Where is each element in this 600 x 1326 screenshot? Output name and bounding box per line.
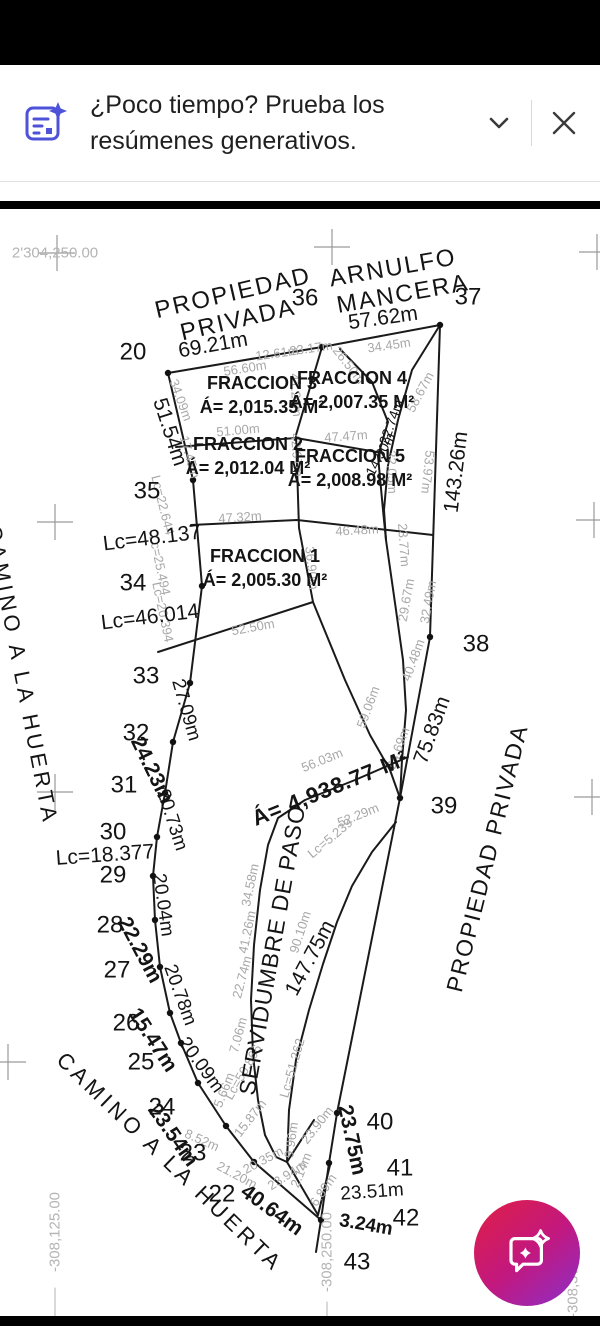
measurement-primary: Lc=46.014 [100,600,201,635]
banner-divider [531,100,532,146]
close-icon [550,109,578,137]
ai-summary-banner: ¿Poco tiempo? Prueba los resúmenes gener… [0,65,600,182]
survey-drawing-canvas[interactable]: 2'304,250.00-308,125.00-308,250.00-308,3… [0,210,600,1316]
banner-message: ¿Poco tiempo? Prueba los resúmenes gener… [90,87,473,159]
measurement-primary: 147.75m [281,917,340,1000]
measurement-primary: 143.26m [440,430,473,514]
grid-coordinate-label: 2'304,250.00 [12,245,98,262]
vertex-dot [167,1010,173,1016]
fraction-label: Á= 2,007.35 M² [290,391,415,412]
measurement-secondary: 9.96m [281,1121,301,1159]
point-number: 35 [134,478,161,505]
measurement-primary: 3.24m [338,1210,395,1240]
measurement-primary: 23.75m [333,1103,370,1177]
fraction-label: Á= 2,008.98 M² [288,469,413,490]
measurement-secondary: 47.32m [218,508,262,526]
fraction-label: FRACCION 5 [295,446,405,466]
vertex-dot [397,795,403,801]
measurement-primary: 20.73m [152,787,192,854]
sheet-top-border [0,201,600,209]
chevron-down-icon [484,108,514,138]
area-title: PROPIEDAD PRIVADA [441,721,533,994]
point-number: 37 [455,284,482,311]
point-number: 43 [344,1249,371,1276]
vertex-dot [165,370,171,376]
measurement-secondary: 23.90m [298,1103,337,1146]
measurement-secondary: 15.87m [231,1096,270,1139]
ai-assistant-chat-icon [495,1221,559,1285]
vertex-dot [154,834,160,840]
point-number: 25 [128,1049,155,1076]
fraction-label: FRACCION 2 [193,434,303,454]
measurement-secondary: 32.49m [417,579,439,624]
point-number: 38 [463,631,490,658]
vertex-dot [170,739,176,745]
generative-summary-icon [22,100,68,146]
ai-assistant-fab[interactable] [474,1200,580,1306]
point-number: 22 [209,1181,236,1208]
point-number: 23 [180,1140,207,1167]
point-number: 29 [100,862,127,889]
app-screen: ¿Poco tiempo? Prueba los resúmenes gener… [0,0,600,1326]
banner-message-line1: ¿Poco tiempo? Prueba los [90,91,385,119]
point-number: 42 [393,1205,420,1232]
point-number: 31 [111,772,138,799]
measurement-primary: 75.83m [409,693,455,767]
fraction-label: Á= 2,005.30 M² [203,569,328,590]
status-bar [0,0,600,65]
measurement-secondary: Lc=5.239 [305,815,356,861]
measurement-secondary: Lc=51.262 [276,1037,307,1100]
vertex-dot [427,634,433,640]
measurement-secondary: 53.97m [418,450,437,495]
point-number: 34 [120,570,147,597]
banner-collapse-button[interactable] [473,97,525,149]
point-number: 32 [123,720,150,747]
point-number: 26 [113,1010,140,1037]
banner-message-line2: resúmenes generativos. [90,127,357,155]
measurement-secondary: 47.47m [324,427,368,445]
sheet-bottom-border [0,1316,600,1326]
point-number: 20 [120,339,147,366]
area-title: CAMINO A LA HUERTA [0,523,63,827]
point-number: 30 [100,819,127,846]
point-number: 24 [149,1094,176,1121]
measurement-secondary: 29.67m [395,577,417,622]
grid-coordinate-label: -308,250.00 [319,1212,336,1292]
fraction-label: FRACCION 1 [210,546,320,566]
measurement-primary: 20.04m [148,872,178,938]
banner-close-button[interactable] [538,97,590,149]
fraction-label: FRACCION 4 [297,368,407,388]
point-number: 41 [387,1155,414,1182]
measurement-primary: 23.51m [340,1179,405,1204]
measurement-secondary: 23.17m [288,338,333,359]
point-number: 28 [97,912,124,939]
measurement-secondary: 23.77m [395,523,413,567]
vertex-dot [223,1123,229,1129]
vertex-dot [326,1160,332,1166]
vertex-dot [437,322,443,328]
point-number: 39 [431,793,458,820]
point-number: 33 [133,663,160,690]
measurement-secondary: 52.50m [230,616,275,638]
measurement-secondary: 46.48m [335,521,379,538]
point-number: 40 [367,1109,394,1136]
measurement-primary: 27.09m [167,677,205,744]
point-number: 36 [292,285,319,312]
grid-coordinate-label: -308,125.00 [47,1192,64,1272]
point-number: 27 [104,957,131,984]
